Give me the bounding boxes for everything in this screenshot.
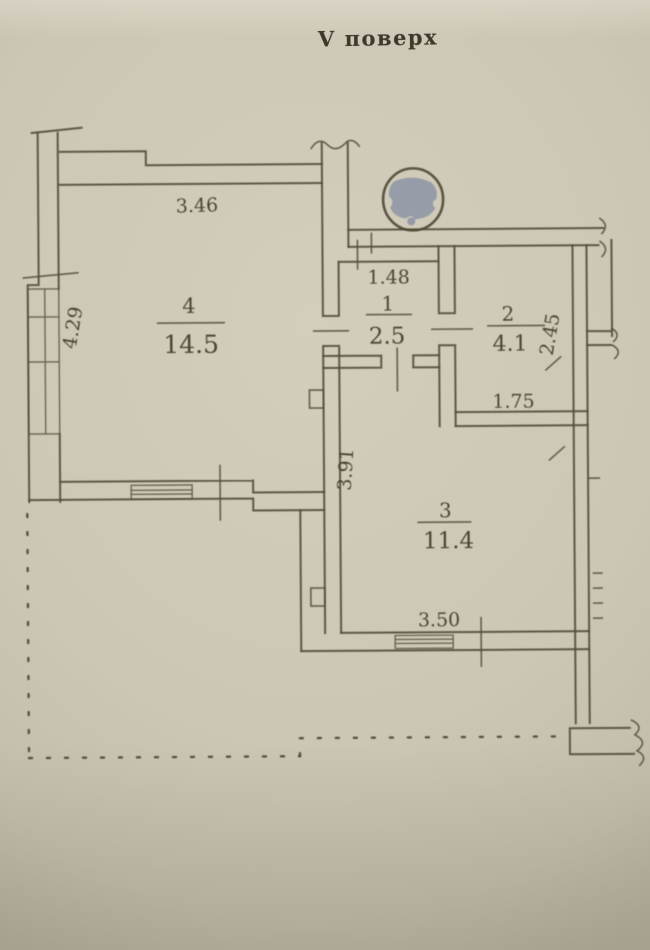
dim-room3-left: 3.91	[334, 448, 359, 492]
wall-central-vertical	[322, 143, 341, 633]
wall-bottom-right-stub	[570, 728, 634, 754]
dim-room1-top: 1.48	[367, 266, 409, 288]
wall-room4-top	[60, 150, 322, 185]
terrace-outline	[27, 510, 560, 758]
wall-room1-room2	[438, 246, 455, 426]
redaction-circle-dot	[407, 217, 415, 225]
window-room3-bottom-hatch	[395, 639, 453, 643]
terrace-dashed-bottom-right	[300, 736, 560, 756]
window-room4-bottom	[131, 485, 192, 499]
dim-room2-right: 2.45	[536, 312, 565, 357]
dim-room2-bottom: 1.75	[492, 391, 534, 413]
window-room3-bottom	[395, 635, 453, 648]
ticks-right-wall	[588, 478, 603, 618]
dim-room4-top: 3.46	[175, 194, 218, 217]
tick-room4-left-wall	[23, 273, 79, 278]
dim-room4-left: 4.29	[59, 305, 88, 350]
wall-room1-top	[339, 261, 439, 262]
room2-area: 4.1	[493, 332, 528, 357]
room1-area: 2.5	[369, 323, 406, 349]
wall-chimney-stub	[348, 143, 349, 247]
wall-terrace-pier	[300, 510, 301, 651]
redaction-circle-blob	[389, 177, 437, 219]
room1-number: 1	[381, 292, 394, 316]
room3-area: 11.4	[423, 528, 474, 554]
dim-slashes-245	[545, 356, 565, 460]
walls	[22, 124, 644, 770]
wall-break-squiggle-top	[311, 140, 360, 149]
scanned-floor-plan-page: V поверх	[0, 0, 650, 950]
ticks-room1-top	[357, 233, 371, 270]
room4-number: 4	[182, 294, 196, 318]
terrace-dashed-bottom-left	[29, 756, 300, 758]
wall-break-hooks-top-right	[599, 218, 605, 257]
wall-room2-bottom	[456, 411, 588, 426]
room2-number: 2	[501, 302, 514, 326]
floor-plan-drawing: 3.46 4.29 1.48 2.45 1.75 3.91 3.50 4 14.…	[0, 0, 650, 950]
window-room4-bottom-hatch	[131, 490, 192, 494]
room3-number: 3	[439, 498, 452, 522]
redaction-circle	[383, 168, 443, 230]
terrace-dashed-left	[27, 514, 29, 758]
wall-break-zigzag-bottom-right	[631, 720, 644, 766]
wall-right-protrusion	[586, 240, 612, 345]
wall-right-outer	[572, 245, 589, 723]
room4-area: 14.5	[163, 330, 219, 359]
pilaster-lower	[311, 588, 325, 606]
dim-room3-bottom: 3.50	[418, 609, 460, 631]
pilaster-upper	[309, 390, 323, 408]
wall-room1-bottom	[323, 355, 439, 368]
wall-top-left-cap	[32, 128, 82, 133]
wall-top-corridor	[348, 228, 603, 247]
window-room4-left-dividers	[28, 289, 60, 434]
